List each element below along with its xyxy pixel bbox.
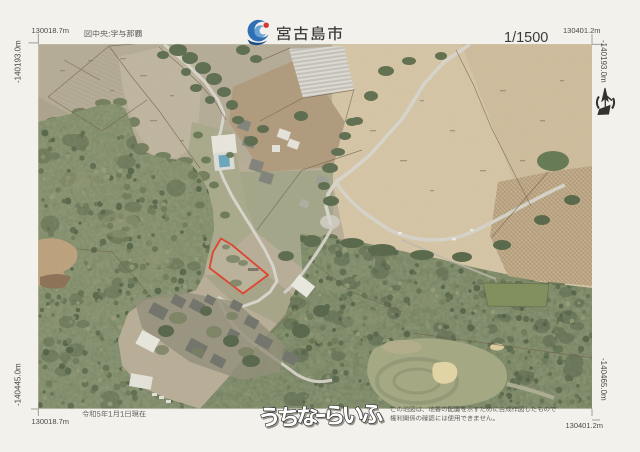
svg-text:1/1500: 1/1500 — [504, 30, 548, 46]
svg-text:130401.2m: 130401.2m — [566, 421, 604, 430]
svg-text:130018.7m: 130018.7m — [32, 417, 70, 426]
svg-text:-140465.0m: -140465.0m — [599, 358, 608, 401]
svg-text:-140445.0m: -140445.0m — [14, 363, 23, 406]
svg-text:130018.7m: 130018.7m — [32, 26, 70, 35]
svg-text:-140193.0m: -140193.0m — [599, 40, 608, 83]
svg-text:130401.2m: 130401.2m — [563, 26, 601, 35]
svg-text:-140193.0m: -140193.0m — [14, 40, 23, 83]
